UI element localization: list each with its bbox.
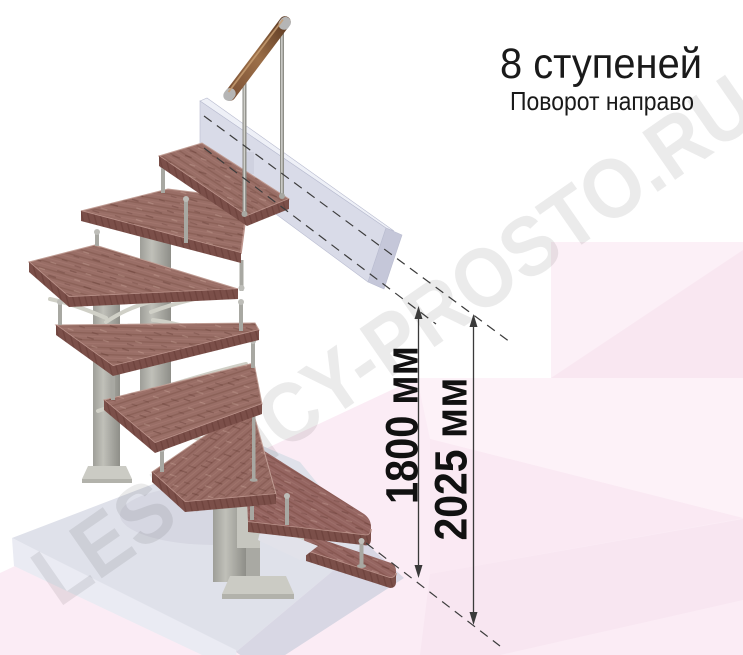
svg-text:2025 мм: 2025 мм: [426, 378, 477, 541]
svg-text:Поворот направо: Поворот направо: [510, 86, 694, 116]
svg-text:1800 мм: 1800 мм: [377, 346, 428, 504]
svg-text:8 ступеней: 8 ступеней: [500, 40, 702, 88]
